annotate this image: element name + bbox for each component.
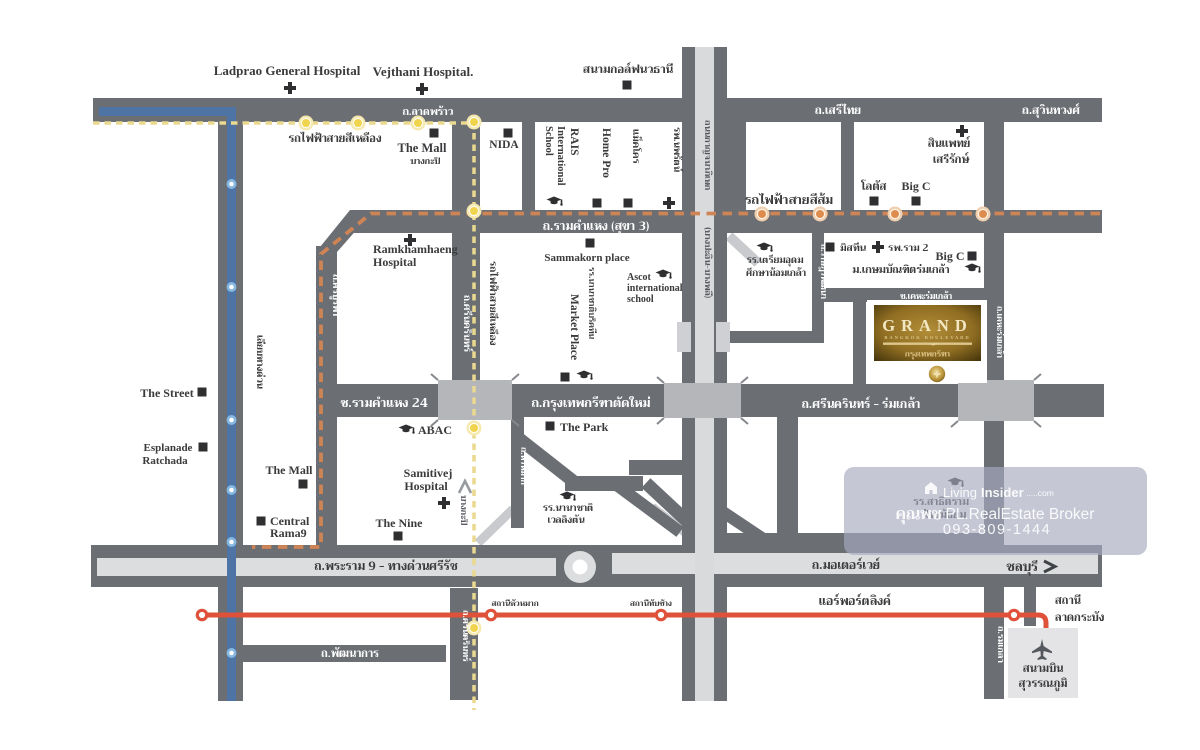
svg-text:รพ.ราม 2: รพ.ราม 2	[888, 240, 929, 257]
svg-text:โลตัส: โลตัส	[861, 177, 888, 196]
svg-text:ถ.พระราม 9 - ทางด่วนศรีรัช: ถ.พระราม 9 - ทางด่วนศรีรัช	[314, 557, 457, 577]
svg-text:กรุงเทพกรีฑา: กรุงเทพกรีฑา	[905, 348, 950, 362]
svg-text:BANGKOK BOULEVARD: BANGKOK BOULEVARD	[884, 335, 970, 340]
svg-text:สนามกอล์ฟนวธานี: สนามกอล์ฟนวธานี	[583, 60, 674, 80]
svg-text:ถ.มอเตอร์เวย์: ถ.มอเตอร์เวย์	[812, 556, 880, 576]
svg-text:ม.เกษมบัณฑิตร่มเกล้า: ม.เกษมบัณฑิตร่มเกล้า	[852, 260, 950, 279]
svg-text:The Nine: The Nine	[375, 516, 423, 530]
svg-text:Living: Living	[943, 485, 977, 500]
svg-text:แม็คโคร: แม็คโคร	[627, 129, 644, 164]
svg-text:Ascot: Ascot	[627, 272, 652, 283]
svg-text:International: International	[555, 126, 566, 186]
svg-text:(บางปะอิน-บางพลี): (บางปะอิน-บางพลี)	[700, 227, 716, 299]
svg-text:Hospital: Hospital	[404, 479, 448, 493]
svg-text:GRAND: GRAND	[882, 316, 973, 335]
svg-text:ชลบุรี: ชลบุรี	[1006, 555, 1038, 578]
svg-text:Insider: Insider	[981, 485, 1024, 500]
svg-text:Home Pro: Home Pro	[600, 128, 612, 178]
svg-text:สุวรรณภูมิ: สุวรรณภูมิ	[1019, 674, 1068, 693]
svg-text:ถ.สุวินทวงศ์: ถ.สุวินทวงศ์	[1022, 101, 1080, 121]
svg-text:Big C: Big C	[901, 179, 930, 193]
svg-text:ซ.รามคำแหง 24: ซ.รามคำแหง 24	[340, 392, 429, 414]
svg-text:Samitivej: Samitivej	[404, 466, 453, 480]
svg-text:สถานีหัวหมาก: สถานีหัวหมาก	[491, 597, 539, 611]
svg-text:RAIS: RAIS	[568, 128, 580, 155]
svg-text:ถ.ศรีนครินทร์: ถ.ศรีนครินทร์	[458, 610, 474, 662]
svg-text:ถ.รามคำแหง (สุขา 3): ถ.รามคำแหง (สุขา 3)	[543, 217, 649, 237]
svg-text:ถ.หัวหมาก: ถ.หัวหมาก	[516, 447, 531, 486]
svg-text:The Street: The Street	[140, 386, 193, 400]
svg-text:Ratchada: Ratchada	[142, 455, 188, 467]
svg-text:School: School	[543, 126, 554, 156]
svg-text:Ramkhamhaeng: Ramkhamhaeng	[373, 242, 458, 256]
svg-text:The Mall: The Mall	[266, 463, 314, 477]
svg-text:ถ.ศรีนครินทร์ - ร่มเกล้า: ถ.ศรีนครินทร์ - ร่มเกล้า	[802, 395, 921, 415]
svg-text:รถไฟฟ้าสายสีเหลือง: รถไฟฟ้าสายสีเหลือง	[484, 261, 501, 346]
svg-text:The Park: The Park	[560, 420, 609, 434]
svg-text:Esplanade: Esplanade	[144, 442, 193, 454]
svg-text:มิสทีน: มิสทีน	[840, 240, 866, 257]
svg-text:093-809-1444: 093-809-1444	[943, 522, 1051, 538]
svg-text:ถนนกาญจนาภิเษก: ถนนกาญจนาภิเษก	[700, 120, 716, 191]
svg-text:ถ.ศรีนครินทร์: ถ.ศรีนครินทร์	[458, 295, 475, 352]
svg-text:NIDA: NIDA	[489, 139, 519, 151]
svg-text:Market Place: Market Place	[568, 294, 580, 360]
svg-text:international: international	[627, 283, 683, 294]
svg-text:เวลลิงตัน: เวลลิงตัน	[547, 513, 585, 529]
svg-text:รถไฟฟ้าสายสีส้ม: รถไฟฟ้าสายสีส้ม	[745, 189, 833, 211]
svg-text:บางกะปิ: บางกะปิ	[456, 495, 472, 526]
svg-text:ถ.ราษฎร์พัฒนา: ถ.ราษฎร์พัฒนา	[816, 244, 831, 299]
svg-text:Ladprao General Hospital: Ladprao General Hospital	[214, 63, 361, 78]
svg-text:Rama9: Rama9	[270, 526, 307, 540]
svg-text:Sammakorn place: Sammakorn place	[544, 252, 629, 264]
svg-text:ลาดกระบัง: ลาดกระบัง	[1055, 608, 1104, 627]
svg-text:แอร์พอร์ตลิงค์: แอร์พอร์ตลิงค์	[819, 592, 891, 612]
svg-text:ศึกษาน้อมเกล้า: ศึกษาน้อมเกล้า	[746, 266, 807, 282]
svg-text:รร.นานาชาติบริคทีน: รร.นานาชาติบริคทีน	[584, 267, 599, 340]
svg-text:ถ.ลาดพร้าว: ถ.ลาดพร้าว	[402, 102, 453, 121]
svg-text:เลียบทางด่วน: เลียบทางด่วน	[251, 335, 267, 390]
svg-text:ถ.ศรีบูรพา: ถ.ศรีบูรพา	[327, 274, 343, 317]
svg-text:ถ.พัฒนาการ: ถ.พัฒนาการ	[321, 644, 380, 663]
svg-text:Hospital: Hospital	[373, 255, 417, 269]
svg-text:รถไฟฟ้าสายสีเหลือง: รถไฟฟ้าสายสีเหลือง	[288, 129, 381, 148]
svg-text:ถ.เสรีไทย: ถ.เสรีไทย	[815, 101, 861, 121]
svg-text:ถ.กรุงเทพกรีฑาตัดใหม่: ถ.กรุงเทพกรีฑาตัดใหม่	[532, 392, 651, 414]
svg-text:ถ.เคหะร่มเกล้า: ถ.เคหะร่มเกล้า	[992, 306, 1007, 358]
svg-text:ABAC: ABAC	[418, 423, 452, 437]
svg-text:รพ.นพรัตน์: รพ.นพรัตน์	[668, 127, 684, 173]
svg-text:ถ.ร่มเกล้า: ถ.ร่มเกล้า	[993, 626, 1009, 663]
svg-text:school: school	[627, 294, 654, 305]
svg-text:สถานีทับช้าง: สถานีทับช้าง	[630, 597, 673, 611]
svg-text:.....com: .....com	[1026, 488, 1054, 498]
svg-text:Vejthani Hospital.: Vejthani Hospital.	[373, 64, 474, 79]
svg-text:เสรีรักษ์: เสรีรักษ์	[933, 150, 971, 169]
svg-text:บางกะปิ: บางกะปิ	[410, 153, 441, 169]
